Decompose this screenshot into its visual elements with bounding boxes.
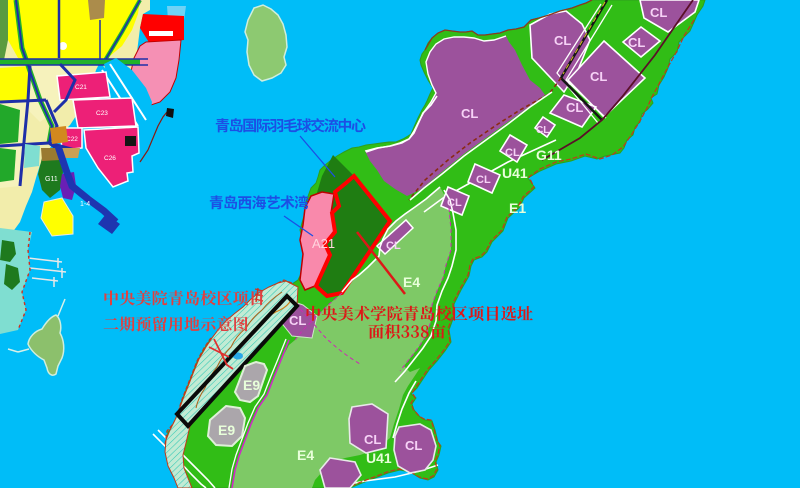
svg-text:E9: E9 [243, 377, 260, 393]
svg-text:U41: U41 [366, 450, 392, 466]
svg-text:CL: CL [566, 100, 583, 115]
svg-text:CL: CL [386, 240, 401, 252]
svg-text:CL: CL [476, 174, 491, 186]
svg-text:G11: G11 [536, 147, 562, 163]
svg-text:CL: CL [364, 432, 381, 447]
svg-text:E1: E1 [509, 200, 526, 216]
svg-text:CL: CL [405, 438, 422, 453]
svg-text:E4: E4 [403, 274, 420, 290]
svg-text:CL: CL [650, 5, 667, 20]
svg-text:CL: CL [447, 197, 462, 209]
svg-text:C23: C23 [96, 110, 108, 117]
svg-text:U41: U41 [502, 165, 528, 181]
svg-text:1-4: 1-4 [80, 201, 90, 208]
svg-text:CL: CL [505, 147, 520, 159]
svg-text:CL: CL [289, 313, 306, 328]
svg-text:E4: E4 [297, 447, 314, 463]
svg-text:CL: CL [554, 33, 571, 48]
svg-text:G11: G11 [45, 176, 58, 183]
svg-text:CL: CL [590, 69, 607, 84]
svg-text:CL: CL [461, 106, 478, 121]
svg-text:C26: C26 [104, 155, 116, 162]
svg-text:CL: CL [628, 35, 645, 50]
svg-text:C21: C21 [75, 84, 87, 91]
svg-text:CL: CL [536, 125, 549, 136]
svg-text:E9: E9 [218, 422, 235, 438]
svg-text:A21: A21 [312, 236, 335, 251]
